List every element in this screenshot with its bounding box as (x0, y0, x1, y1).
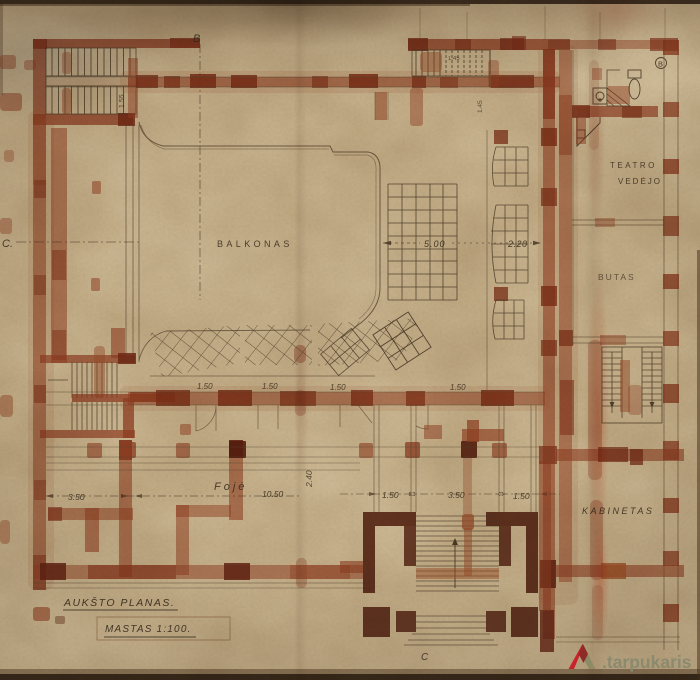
svg-text:.tarpukaris: .tarpukaris (602, 652, 692, 672)
